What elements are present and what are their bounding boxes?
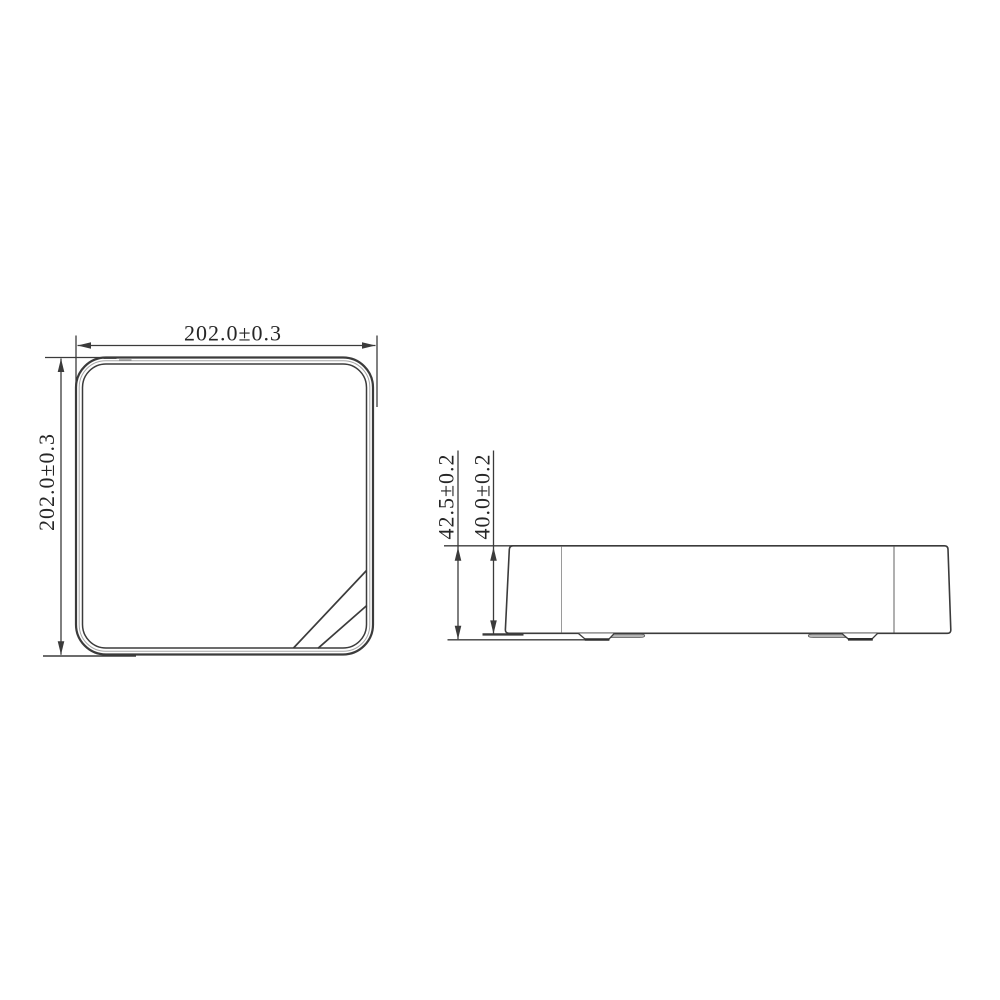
right-foot-far-pad	[808, 634, 847, 637]
side-view	[444, 546, 951, 640]
arrowhead-up-icon	[455, 547, 462, 561]
drawing-canvas: 202.0±0.3 202.0±0.3 42.5±0.2	[0, 0, 1000, 1000]
arrowhead-down-icon	[490, 620, 497, 634]
height-dimension-label: 202.0±0.3	[34, 433, 59, 531]
top-view	[76, 358, 373, 655]
body-height-dimension: 40.0±0.2	[470, 451, 497, 634]
arrowhead-down-icon	[58, 641, 65, 655]
body-height-dimension-label: 40.0±0.2	[470, 453, 495, 539]
side-view-body	[505, 546, 950, 634]
arrowhead-up-icon	[490, 547, 497, 561]
width-dimension-label: 202.0±0.3	[184, 321, 282, 346]
overall-height-dimension-label: 42.5±0.2	[434, 453, 459, 539]
arrowhead-up-icon	[58, 359, 65, 373]
overall-height-dimension: 42.5±0.2	[434, 451, 462, 640]
arrowhead-right-icon	[362, 342, 376, 349]
dimension-drawing: 202.0±0.3 202.0±0.3 42.5±0.2	[0, 0, 1000, 1000]
arrowhead-down-icon	[455, 626, 462, 640]
arrowhead-left-icon	[78, 342, 92, 349]
